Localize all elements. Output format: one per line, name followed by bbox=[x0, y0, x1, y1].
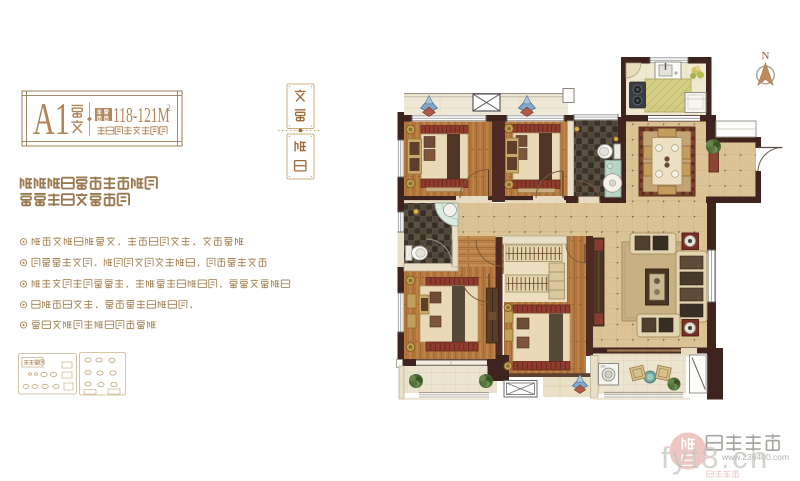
svg-text:fyt8.cn: fyt8.cn bbox=[661, 440, 770, 475]
svg-text:2: 2 bbox=[167, 103, 171, 113]
svg-text:N: N bbox=[762, 50, 770, 62]
svg-text:A1: A1 bbox=[33, 95, 70, 144]
svg-text:118-121M: 118-121M bbox=[113, 103, 170, 127]
